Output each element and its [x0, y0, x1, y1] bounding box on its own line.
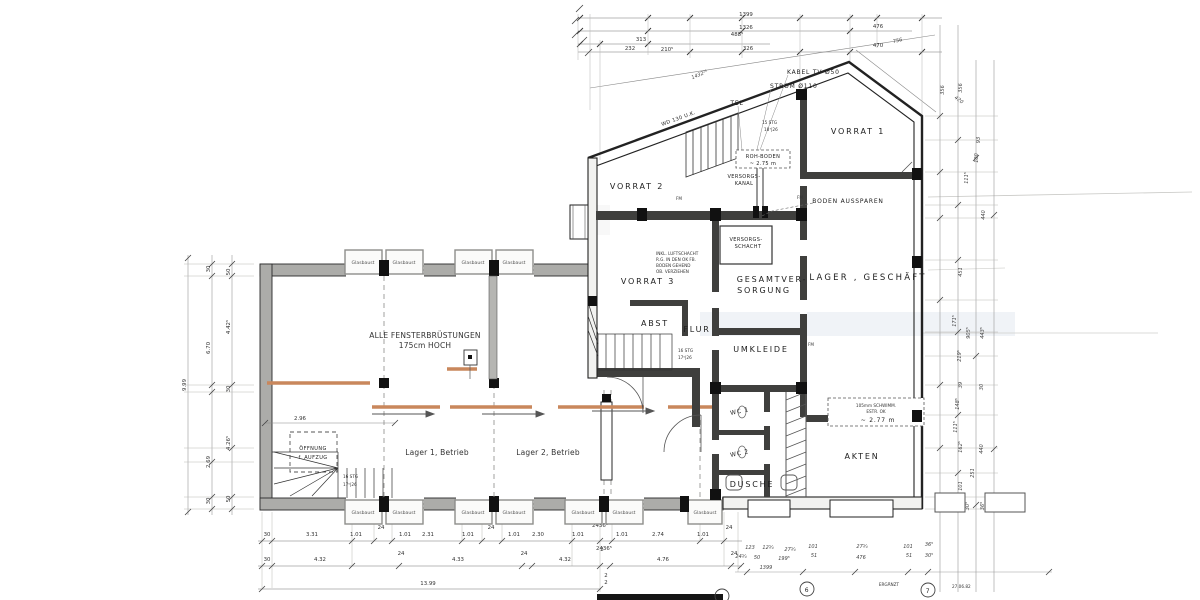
dim-top-232: 232	[625, 46, 635, 52]
right-building: VORRAT 1 VORRAT 2 VORRAT 3 LAGER , GESCH…	[570, 62, 1025, 517]
dim-h-0: 123	[745, 545, 755, 551]
dim-r-0: 356	[940, 85, 946, 95]
dim-l-1: 30	[206, 265, 212, 272]
dim-top-1399: 1399	[739, 12, 753, 18]
dim-r-3: 180	[974, 153, 980, 163]
room-abst: ABST	[641, 319, 669, 328]
dim-r-15: 162⁵	[958, 441, 964, 453]
dim-b2-8: 2	[604, 580, 607, 586]
floorplan-canvas: 1399 1326 488⁵ 313 476 756 232 210⁵ 326 …	[0, 0, 1200, 600]
wall-vorrat1-bottom	[800, 172, 922, 179]
dim-top-326: 326	[743, 46, 754, 52]
tel-label: TEL	[729, 100, 743, 107]
room-dusche: DUSCHE	[730, 480, 775, 489]
dim-top-470: 470	[873, 43, 884, 49]
luft-note-1: INKL. LUFTSCHACHT	[656, 251, 699, 256]
kabel-label: KABEL TV Ø50	[787, 69, 840, 76]
glasbaust-label: Glasbaust	[352, 260, 375, 266]
dim-h-10: 50	[754, 555, 760, 561]
glasbaust-label: Glasbaust	[462, 510, 485, 516]
dim-l-2: 6.70	[206, 341, 212, 354]
glasbaust-label: Glasbaust	[694, 510, 717, 516]
wall-mid-vertical	[712, 220, 719, 497]
dim-roof-420: 420	[953, 95, 964, 106]
scale-bar	[597, 594, 723, 600]
fm-label: FM	[808, 342, 814, 347]
dim-b1-15: 1.01	[697, 532, 709, 538]
dim-r-14: 111⁵	[953, 421, 959, 433]
dim-r-9: 443⁵	[980, 327, 986, 339]
room-lager1: Lager 1, Betrieb	[405, 448, 469, 457]
dim-b1-2: 1.01	[350, 532, 362, 538]
stair16-label-2: 17⁵|26	[343, 482, 357, 487]
grid-bubble-7-label: 7	[926, 588, 931, 595]
dim-r-12: 30	[979, 384, 985, 390]
dim-r-4: 111⁵	[964, 172, 970, 184]
versorgsschacht-1: VERSORGS-	[729, 237, 762, 243]
glasbaust-label: Glasbaust	[393, 510, 416, 516]
estrich-1: 105mm SCHWIMM.	[856, 403, 896, 408]
dim-r-2: 93	[976, 137, 982, 143]
dim-l-4: 30	[206, 497, 212, 504]
glasbaust-label: Glasbaust	[503, 260, 526, 266]
wall-left-right-building	[588, 158, 597, 378]
dim-r-10: 219⁵	[957, 350, 963, 362]
dim-b1-5: 2.31	[422, 532, 434, 538]
dim-h-7: 101	[903, 544, 913, 550]
wall-wc-divider2	[719, 470, 767, 475]
luft-note-4: OB. VERZIEHEN	[656, 269, 689, 274]
dim-l-7: 30	[226, 385, 232, 392]
dimension-chain-left: 9.99 30 6.70 2.69 30 50 4.42⁵ 30 4.26⁵ 5…	[182, 255, 254, 515]
stair16r-label-1: 16 STG	[678, 348, 693, 353]
room-gesamt-2: SORGUNG	[737, 286, 791, 295]
dim-r-5: 440	[981, 210, 987, 220]
dim-b2-4: 24	[521, 551, 528, 557]
room-vorrat1: VORRAT 1	[831, 127, 885, 136]
dim-top-756: 756	[892, 37, 903, 45]
estrich-2: ESTR. OK	[866, 409, 886, 414]
left-building: Glasbaust Glasbaust Glasbaust Glasbaust …	[260, 250, 723, 524]
glasbaust-label: Glasbaust	[352, 510, 375, 516]
strom-label: STROM Ø110	[770, 83, 818, 90]
wall-vorrat1-left	[800, 93, 807, 177]
dim-r-19: 30⁵	[965, 502, 971, 510]
dim-h-1: 12¾	[762, 545, 773, 551]
dim-r-1: 356	[958, 83, 964, 93]
estrich-3: ~ 2.77 m	[861, 417, 895, 424]
dim-r-16: 440	[979, 444, 985, 454]
dim-l-3: 2.69	[206, 455, 212, 468]
dim-296: 2.96	[294, 416, 307, 422]
stair15-label-2: 18⁷|26	[764, 127, 778, 132]
footer-marks: 6 7 ERGÄNZT 27.06.82	[597, 582, 971, 600]
ergaenzt-note: ERGÄNZT	[879, 582, 900, 587]
dim-r-7: 171⁵	[952, 315, 958, 327]
room-gesamt-1: GESAMTVER-	[737, 275, 807, 284]
fensternote-2: 175cm HOCH	[399, 341, 452, 350]
date-note: 27.06.82	[952, 584, 971, 589]
wall-vorrat2-bottom	[596, 211, 806, 220]
wall-umkleide-bottom	[719, 385, 802, 392]
dim-b2-5: 4.32	[559, 557, 571, 563]
fm-label: FM	[676, 196, 682, 201]
room-akten: AKTEN	[844, 452, 879, 461]
dim-r-6: 451	[958, 267, 964, 277]
fensternote-1: ALLE FENSTERBRÜSTUNGEN	[369, 331, 480, 340]
dim-b2-6: 2436⁵	[596, 545, 612, 552]
dim-h-14: 1399	[760, 565, 773, 571]
dim-h-3: 101	[808, 544, 818, 550]
dim-h-13: 30⁵	[925, 553, 933, 559]
luft-note-2: R.G. IN DEN OK FB.	[656, 257, 696, 262]
dim-top-2105: 210⁵	[661, 46, 673, 53]
room-lager2: Lager 2, Betrieb	[516, 448, 580, 457]
stair15-label-1: 15 STG	[762, 120, 777, 125]
wall-left	[260, 264, 272, 510]
wall-flur-bottom	[588, 368, 700, 377]
dim-b1-13: 1.01	[616, 532, 628, 538]
dim-b1-7: 24	[488, 525, 495, 531]
glasbaust-label: Glasbaust	[462, 260, 485, 266]
wall-wc-divider1	[719, 430, 767, 435]
versorgsschacht-2: SCHACHT	[735, 244, 762, 250]
rohboden-2: ~ 2.75 m	[750, 161, 777, 167]
glasbaust-label: Glasbaust	[503, 510, 526, 516]
dim-diag-1432: 1432²⁵	[691, 69, 709, 81]
dim-l-9: 50	[226, 495, 232, 502]
glasbaust-label: Glasbaust	[613, 510, 636, 516]
dim-h-4: 51	[811, 553, 817, 559]
oeffnung-label-2: f. AUFZUG	[298, 455, 327, 461]
dim-b2-1: 4.32	[314, 557, 326, 563]
rohboden-1: ROH-BODEN	[746, 154, 780, 160]
dim-r-13: 148⁵	[955, 398, 961, 410]
dim-b1-10: 1.01	[572, 532, 584, 538]
dim-b1-8: 1.01	[508, 532, 520, 538]
room-wc1: WC 1	[730, 406, 750, 417]
grid-bubble-6-label: 6	[805, 587, 810, 594]
dim-b1-9: 2.30	[532, 532, 545, 538]
glasbaust-label: Glasbaust	[393, 260, 416, 266]
glasbaust-label: Glasbaust	[572, 510, 595, 516]
oeffnung-label-1: ÖFFNUNG	[299, 445, 327, 452]
room-umkleide: UMKLEIDE	[733, 345, 789, 354]
dim-r-17: 251	[970, 468, 976, 478]
room-lager-geschaeft: LAGER , GESCHÄFT	[809, 272, 926, 283]
dim-r-11: 39	[958, 382, 964, 388]
wall-top	[260, 264, 592, 276]
dim-top-1326: 1326	[739, 25, 753, 31]
dim-top-313: 313	[636, 37, 646, 43]
stair16r-label-2: 17⁵|26	[678, 355, 692, 360]
dim-l-8: 4.26⁵	[225, 436, 232, 450]
dim-r-18: 101	[958, 481, 964, 491]
dim-r-8: 905⁵	[966, 327, 972, 339]
versorgskanal-2: KANAL	[735, 181, 754, 187]
dimension-chain-top: 1399 1326 488⁵ 313 476 756 232 210⁵ 326 …	[572, 5, 964, 160]
dim-top-4885: 488⁵	[731, 31, 743, 38]
dim-b2-9: 4.76	[657, 557, 670, 563]
luft-note-3: BODEN GEHEND	[656, 263, 690, 268]
dim-b1-0: 30	[264, 532, 271, 538]
dim-b1-4: 1.01	[399, 532, 411, 538]
dim-l-0: 9.99	[182, 378, 188, 391]
dim-top-476: 476	[873, 24, 884, 30]
dim-b1-6: 1.01	[462, 532, 474, 538]
dim-b1-3: 24	[378, 525, 385, 531]
dim-b3-0: 13.99	[420, 581, 436, 587]
dim-h-5: 27¾	[856, 544, 867, 550]
stair-right-building	[588, 302, 672, 370]
stair-top	[686, 113, 738, 177]
room-vorrat3: VORRAT 3	[621, 277, 675, 286]
versorgskanal-1: VERSORGS-	[727, 174, 760, 180]
dim-h-2: 27¾	[784, 547, 795, 553]
dim-b1-16: 24	[726, 525, 733, 531]
dim-l-5: 50	[226, 268, 232, 275]
fm-label: FM	[797, 195, 803, 200]
floorplan-drawing: 1399 1326 488⁵ 313 476 756 232 210⁵ 326 …	[0, 0, 1200, 600]
wall-corridor	[692, 377, 700, 427]
dim-h-8: 51	[906, 553, 912, 559]
dim-h-11: 199⁵	[778, 556, 790, 562]
dim-h-12: 36⁵	[925, 542, 933, 548]
boden-aussparen: BODEN AUSSPAREN	[812, 198, 883, 205]
dim-b1-1: 3.31	[306, 532, 318, 538]
dim-b2-3: 4.33	[452, 557, 464, 563]
stair16-label-1: 16 STG	[343, 474, 358, 479]
room-vorrat2: VORRAT 2	[610, 182, 664, 191]
dim-b2-7: 2	[604, 573, 607, 579]
room-flur: FLUR	[683, 325, 710, 334]
dim-b2-2: 24	[398, 551, 405, 557]
dim-h-9: 24¾	[735, 554, 746, 560]
dim-b1-14: 2.74	[652, 532, 665, 538]
dim-l-6: 4.42⁵	[225, 320, 232, 334]
dim-h-6: 476	[856, 555, 866, 561]
dim-b2-0: 30	[264, 557, 271, 563]
wall-umkleide-top	[712, 328, 804, 335]
